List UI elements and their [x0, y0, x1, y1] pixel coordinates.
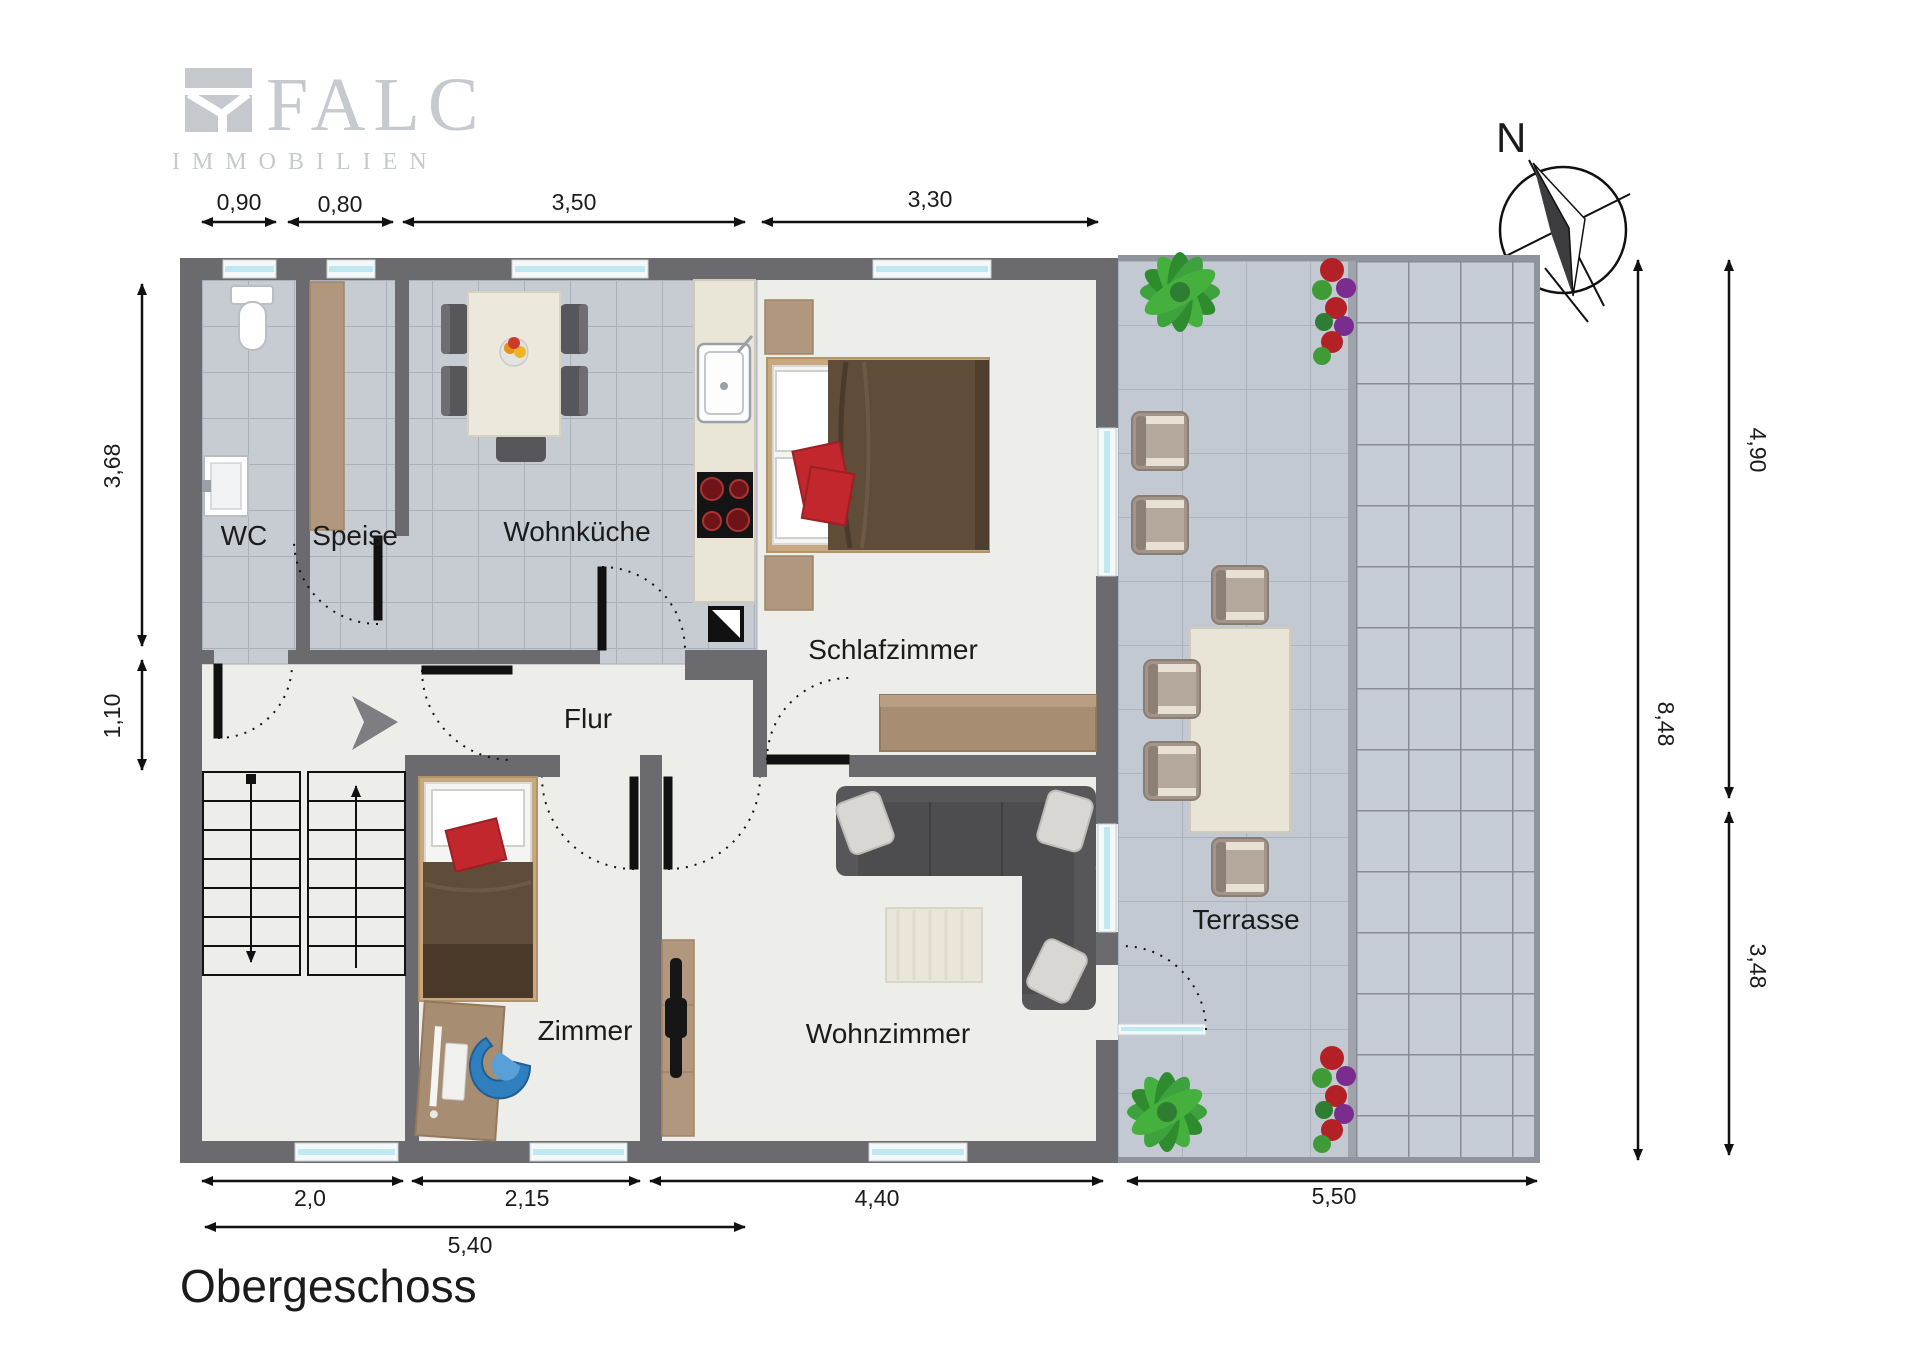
- tv-shelf: [662, 940, 694, 1136]
- window: [223, 260, 276, 278]
- dim-bottom-2: 2,15: [505, 1185, 550, 1211]
- dim-bottom-1: 2,0: [294, 1185, 326, 1211]
- window: [873, 260, 991, 278]
- compass-north-label: N: [1496, 114, 1526, 161]
- page-title: Obergeschoss: [180, 1260, 477, 1312]
- door-leaf: [767, 755, 849, 764]
- window: [295, 1143, 398, 1161]
- zimmer-furniture: [415, 777, 537, 1141]
- dim-right-3: 3,48: [1745, 944, 1771, 989]
- pantry-shelf: [310, 282, 344, 530]
- appliance-symbol: [708, 606, 744, 642]
- dim-overall: 5,40: [448, 1232, 493, 1258]
- window: [327, 260, 375, 278]
- nightstand: [765, 556, 813, 610]
- dim-right-2: 8,48: [1653, 702, 1679, 747]
- dining-chair: [441, 366, 469, 416]
- single-bed: [419, 777, 537, 1001]
- room-label-schlafzimmer: Schlafzimmer: [808, 634, 978, 665]
- dim-top-4: 3,30: [908, 186, 953, 212]
- desk: [415, 1001, 504, 1140]
- terrace-chair: [1132, 496, 1188, 554]
- window: [1098, 824, 1116, 932]
- dining-chair: [441, 304, 469, 354]
- window: [512, 260, 648, 278]
- room-label-flur: Flur: [564, 703, 612, 734]
- dim-top-1: 0,90: [217, 189, 262, 215]
- room-label-speise: Speise: [312, 520, 398, 551]
- terrace-chair: [1144, 660, 1200, 718]
- room-label-wohnzimmer: Wohnzimmer: [806, 1018, 970, 1049]
- logo-text: FALC: [266, 63, 487, 147]
- dim-bottom-3: 4,40: [855, 1185, 900, 1211]
- dim-left-1: 3,68: [99, 444, 125, 489]
- room-label-wc: WC: [221, 520, 268, 551]
- window: [1098, 428, 1116, 576]
- room-label-terrasse: Terrasse: [1192, 904, 1299, 935]
- room-label-zimmer: Zimmer: [538, 1015, 633, 1046]
- door-leaf: [630, 777, 638, 869]
- door-leaf: [214, 664, 222, 738]
- toilet-icon: [239, 302, 266, 350]
- window: [530, 1143, 627, 1161]
- dim-top-3: 3,50: [552, 189, 597, 215]
- falc-logo: FALC IMMOBILIEN: [172, 63, 487, 175]
- terrace-door-leaf: [1118, 1024, 1206, 1035]
- terrace-chair: [1132, 412, 1188, 470]
- door-leaf: [422, 666, 512, 674]
- dim-top-2: 0,80: [318, 191, 363, 217]
- window: [869, 1143, 967, 1161]
- logo-subtext: IMMOBILIEN: [172, 149, 439, 175]
- nightstand: [765, 300, 813, 354]
- floorplan-page: FALC IMMOBILIEN N: [0, 0, 1920, 1357]
- terrace-table: [1190, 628, 1290, 832]
- dining-chair: [496, 434, 546, 462]
- dim-bottom-4: 5,50: [1312, 1183, 1357, 1209]
- room-label-wohnkueche: Wohnküche: [503, 516, 650, 547]
- kitchen-counter: [694, 280, 755, 602]
- rug: [886, 908, 982, 982]
- door-leaf: [598, 567, 606, 650]
- double-bed: [767, 358, 989, 552]
- terrace-chair: [1212, 838, 1268, 896]
- dim-left-2: 1,10: [99, 694, 125, 739]
- dim-right-1: 4,90: [1745, 428, 1771, 473]
- floorplan-drawing: FALC IMMOBILIEN N: [0, 0, 1920, 1357]
- door-leaf: [664, 777, 672, 869]
- terrace-chair: [1212, 566, 1268, 624]
- terrace-chair: [1144, 742, 1200, 800]
